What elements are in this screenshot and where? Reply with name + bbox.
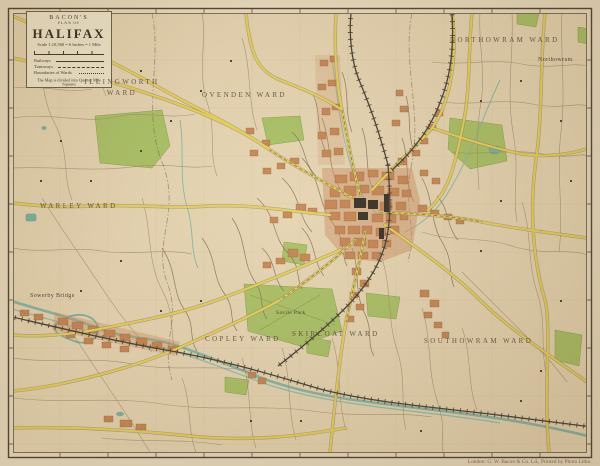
place-label-savile-park: Savile Park: [276, 310, 306, 316]
legend: Railways Tramways Boundaries of Wards: [34, 58, 104, 76]
place-label-sowerby-bridge: Sowerby Bridge: [30, 293, 75, 299]
ward-label-illingworth: ILLINGWORTH WARD: [80, 77, 164, 99]
ward-label-southowram: SOUTHOWRAM WARD: [424, 337, 533, 345]
attribution-text: London: G. W. Bacon & Co. Ld., Printed b…: [468, 460, 592, 465]
ward-label-ovenden: OVENDEN WARD: [202, 91, 287, 99]
boundary-line-symbol: [79, 73, 104, 74]
legend-label: Tramways: [34, 65, 53, 70]
publisher-text: BACON'S: [27, 15, 111, 21]
plan-of-text: PLAN OF: [35, 22, 102, 26]
ward-label-warley: WARLEY WARD: [40, 202, 118, 210]
ward-label-skircoat: SKIRCOAT WARD: [292, 330, 380, 338]
scale-text: Scale 1:10,560 = 6 Inches = 1 Mile: [31, 43, 107, 48]
legend-label: Boundaries of Wards: [34, 71, 72, 76]
legend-label: Railways: [34, 59, 51, 64]
ward-label-northowram: NORTHOWRAM WARD: [450, 36, 560, 44]
ward-label-copley: COPLEY WARD: [205, 335, 281, 343]
place-label-northowram: Northowram: [538, 57, 573, 63]
legend-row-boundaries: Boundaries of Wards: [34, 70, 104, 76]
map-page: BACON'S PLAN OF HALIFAX Scale 1:10,560 =…: [0, 0, 600, 466]
tramway-line-symbol: [58, 67, 104, 68]
map-title: HALIFAX: [27, 26, 111, 42]
scale-bar: [34, 51, 104, 55]
railway-line-symbol: [56, 61, 104, 62]
